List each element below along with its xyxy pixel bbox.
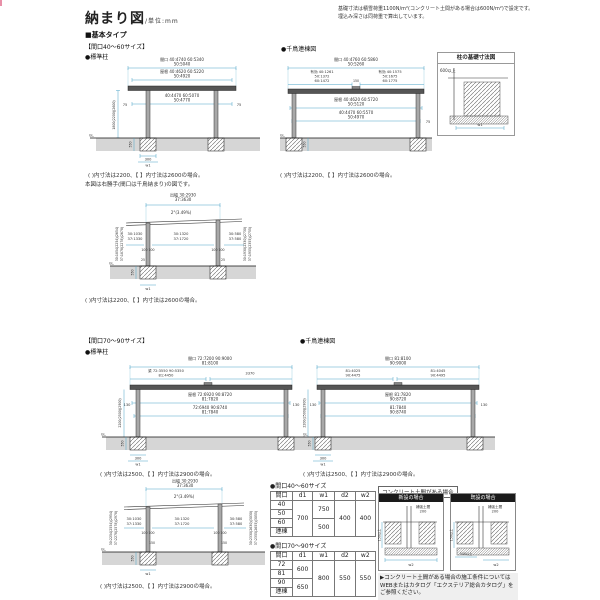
foundation-detail-box: 柱の基礎寸法図 600以上 w1: [437, 52, 515, 136]
dim-label: 50:1372: [315, 75, 330, 79]
gl-label: GL.: [89, 134, 94, 138]
dim-label: 25: [141, 258, 145, 262]
dim-label: 90:4495: [431, 374, 446, 378]
overhang-label: 130: [310, 403, 318, 407]
gl-label: GL.: [101, 548, 106, 552]
post: [471, 390, 475, 438]
dim-label: 81:8100: [202, 361, 219, 366]
dim-label: 25: [221, 258, 225, 262]
drawing-note: ( )内寸法は2500、【 】内寸法は2900の場合。: [100, 582, 216, 590]
dim-label: 梁 72:3550 90:5350: [148, 368, 184, 373]
table-70-90: 間口 d1 w1 d2 w2 72 600 800 550 550 81 906…: [270, 551, 376, 597]
section-size-40-60: 【間口40～60サイズ】: [85, 42, 148, 51]
dim-label: 有効 40:1261: [310, 69, 333, 74]
roof-beam: [128, 86, 236, 91]
base-width-label: 300: [135, 457, 143, 461]
header-note-line2: 埋込み深さは同荷重で算出しています。: [338, 14, 594, 22]
col-header: w1: [313, 552, 335, 561]
footing: [286, 138, 302, 151]
ground: [303, 437, 495, 450]
cell-d1: 700: [292, 501, 312, 537]
concrete-panel: コンクリート土間がある場合 新設の場合 補強土間 200 150以上 w2 既設…: [378, 479, 518, 498]
roof-beam: [288, 89, 424, 94]
drawing-renketsu-40-60: 間口 40:4760 60:5860 50:5260 有効 40:1261 50…: [280, 57, 432, 169]
depth-label: 550: [131, 269, 135, 275]
ground: [90, 138, 260, 151]
slab-dim: 200: [492, 510, 500, 514]
concrete-hatch: [419, 522, 435, 544]
dim-label: 90:9000: [390, 361, 407, 366]
drawing-note: ( )内寸法は2200、【 】内寸法は2600の場合。: [85, 296, 201, 304]
col-header: w2: [355, 492, 375, 501]
dim-label: 50:5120: [348, 102, 365, 107]
height-label: 2200(2500)(2900): [118, 398, 122, 427]
footing: [467, 437, 483, 450]
slope-label: 2°(3.49%): [171, 210, 192, 215]
ground: [102, 552, 265, 565]
concrete-box-new: 新設の場合 補強土間 200 150以上 w2: [378, 493, 444, 571]
height-label: 30:1854(2254)(2654): [115, 227, 119, 261]
table-row: 40 700 750 400 400: [271, 501, 376, 510]
header-note: 基礎寸法は積雪荷重1100N/m²(コンクリート土間がある場合は600N/m²)…: [338, 6, 594, 21]
dim-label: 37:3630: [177, 483, 194, 488]
col-header: w2: [355, 552, 375, 561]
cell-d2: 400: [335, 501, 355, 537]
dim-label: 150: [149, 541, 155, 545]
w2-label: w2: [408, 563, 413, 567]
dim-label: 81:4025: [346, 369, 361, 373]
w1-label: w1: [145, 572, 150, 576]
depth-label: 550: [129, 141, 133, 147]
cell-w1: 750: [313, 501, 335, 519]
concrete-box-existing: 既設の場合 補強土間 200 150以上 500以上 w2: [450, 493, 516, 571]
dim-label: 90:8740: [390, 410, 407, 415]
dim-label: 37:1330: [128, 237, 144, 241]
w1-label: w1: [135, 463, 140, 467]
drawing-side-view-40-60: 出幅 30:2930 37:3630 2°(3.49%) 30:1030 37:…: [108, 192, 256, 292]
dim-label: 37:580: [230, 522, 243, 526]
col-header: d1: [292, 492, 312, 501]
section-basic-type: ■基本タイプ: [85, 30, 127, 40]
cell-size: 90: [271, 579, 293, 588]
catalog-page: { "header": { "title": "納まり図", "unit": "…: [0, 0, 600, 600]
post: [136, 390, 140, 438]
post: [216, 220, 220, 266]
concrete-hatch: [457, 522, 473, 544]
dim-label: 30:580: [229, 232, 242, 236]
side-view-note: 本図は右勝手(間口は千鳥納まり)の図です。: [85, 180, 193, 188]
foundation-detail-drawing: 600以上 w1: [438, 64, 512, 132]
drawing-note: ( )内寸法は2200、【 】内寸法は2600の場合。: [88, 171, 204, 179]
cell-w2: 400: [355, 501, 375, 537]
slab-label: 補強土間: [488, 504, 503, 509]
overhang-label: 130: [293, 403, 301, 407]
dim-label: 100 100: [211, 248, 224, 252]
slab-label: 補強土間: [416, 504, 431, 509]
w1-label: w1: [145, 287, 150, 291]
height-label: 30:2254(2554)(2954): [109, 511, 113, 545]
height-label: 37:1955(2355)(2755): [248, 227, 252, 261]
depth-label: 550: [303, 141, 307, 147]
dim-label: 100 100: [141, 531, 154, 535]
dim-label: 30:580: [230, 517, 243, 521]
post: [146, 223, 150, 266]
col-header: w1: [313, 492, 335, 501]
table-a-title: ●間口40～60サイズ: [270, 481, 376, 490]
overhang-label: 75: [123, 103, 128, 107]
footing: [278, 437, 294, 450]
drawing-front-elevation-40-60: 間口 40:4740 60:5340 50:5040 屋根 40:4620 60…: [88, 57, 260, 169]
w1-label: w1: [145, 164, 150, 168]
header-note-line1: 基礎寸法は積雪荷重1100N/m²(コンクリート土間がある場合は600N/m²)…: [338, 6, 594, 14]
cell-d2: 550: [335, 561, 355, 597]
dim-label: 100 100: [141, 248, 154, 252]
gl-label: GL.: [109, 262, 114, 266]
dim-label: 30:1030: [128, 232, 144, 236]
dim-label: 30:1320: [174, 232, 190, 236]
footing: [315, 437, 331, 450]
drawing-note: ( )内寸法は2500、【 】内寸法は2900の場合。: [303, 470, 419, 478]
post: [146, 507, 150, 552]
concrete-hatch: [491, 522, 507, 544]
dim-label: 37:580: [229, 237, 242, 241]
w1-label: w1: [477, 123, 482, 127]
concrete-hatch: [385, 522, 401, 544]
col-header: d1: [292, 552, 312, 561]
cell-size: 連棟: [271, 588, 293, 597]
slab-dim: 200: [420, 510, 428, 514]
height-label: 2200(2500)(2900): [303, 398, 307, 427]
overhang-label: 75: [237, 103, 242, 107]
col-header: 間口: [271, 492, 293, 501]
dim-label: 81:4450: [159, 374, 175, 378]
cell-size: 40: [271, 501, 293, 510]
dim-label: 37:1720: [174, 237, 190, 241]
roof-beam: [317, 385, 479, 390]
drawing-front-elevation-70-90: 間口 72:7200 90:9000 81:8100 梁 72:3550 90:…: [100, 356, 305, 468]
dim-label: 30:1030: [127, 517, 143, 521]
slope-label: 2°(3.49%): [174, 494, 195, 499]
side-dim: 150以上: [449, 528, 454, 541]
roof-connector: [204, 383, 212, 386]
dim-label: 81:4045: [431, 369, 446, 373]
cell-d1: 600: [292, 561, 312, 579]
cell-d1: 650: [292, 579, 312, 597]
overhang-label: 130: [124, 403, 132, 407]
roof-connector: [352, 87, 360, 90]
cell-size: 60: [271, 519, 293, 528]
gl-label: GL.: [303, 433, 308, 437]
base-dim: 500以上: [460, 551, 473, 556]
crop-mark: [0, 0, 2, 6]
cell-size: 50: [271, 510, 293, 519]
label-standard-post: ●標準柱: [85, 347, 108, 356]
dim-label: 150: [221, 541, 227, 545]
dim-label: 81:7820: [202, 397, 219, 402]
dim-label: 50:4970: [348, 115, 365, 120]
drawing-note: ( )内寸法は2500、【 】内寸法は2900の場合。: [100, 470, 216, 478]
dim-label: 50:5040: [174, 62, 191, 67]
depth-label: 550: [308, 440, 312, 446]
dim-label: 60:1472: [315, 79, 330, 83]
page-title: 納まり図/単位:mm: [85, 8, 179, 28]
footing: [140, 138, 156, 151]
dim-label: 有効 40:1575: [378, 69, 401, 74]
height-label: 30:1930(2330)(2730): [243, 227, 247, 261]
col-header: d2: [335, 492, 355, 501]
col-header: d2: [335, 552, 355, 561]
dim-label: 50:5260: [348, 62, 365, 67]
post: [321, 390, 325, 438]
drawing-side-view-70-90: 出幅 30:2930 37:3630 2°(3.49%) 30:1030 37:…: [100, 478, 265, 578]
table-row: 72 600 800 550 550: [271, 561, 376, 570]
cell-w1: 500: [313, 519, 335, 537]
post: [214, 91, 218, 139]
footing: [208, 138, 224, 151]
drawing-note: ( )内寸法は2200、【 】内寸法は2600の場合。: [280, 171, 396, 179]
section-size-70-90: 【間口70～90サイズ】: [85, 336, 148, 345]
cell-w2: 550: [355, 561, 375, 597]
height-label: 37:2278(2578)(2978): [114, 511, 118, 545]
dim-label: 50:4770: [174, 98, 191, 103]
table-40-60: 間口 d1 w1 d2 w2 40 700 750 400 400 50 605…: [270, 491, 376, 537]
footing: [210, 266, 226, 279]
overhang-label: 75: [426, 120, 431, 124]
dim-label: 150: [353, 79, 359, 83]
post: [292, 94, 296, 139]
table-b-title: ●間口70～90サイズ: [270, 541, 376, 550]
height-label: 37:1878(2278)(2678): [120, 227, 124, 261]
min-depth-label: 600以上: [440, 67, 456, 73]
gl-label: GL.: [101, 433, 106, 437]
side-dim: 150以上: [377, 528, 382, 541]
depth-label: 550: [131, 555, 135, 561]
concrete-box-new-title: 新設の場合: [379, 494, 443, 502]
footing: [212, 552, 228, 565]
post: [146, 91, 150, 139]
dim-label: 50:4920: [174, 74, 191, 79]
gravel-hatch: [385, 548, 437, 555]
base-width-label: 300: [320, 457, 328, 461]
ground: [102, 437, 305, 450]
dim-label: 37:3630: [175, 197, 192, 202]
footing: [140, 552, 156, 565]
dim-label: 30:1320: [175, 517, 191, 521]
dimension-tables: ●間口40～60サイズ 間口 d1 w1 d2 w2 40 700 750 40…: [270, 481, 376, 597]
concrete-existing-drawing: 補強土間 200 150以上 500以上 w2: [451, 502, 513, 568]
roof-beam: [130, 385, 292, 390]
dim-label: 3370: [245, 372, 255, 376]
cell-size: 81: [271, 570, 293, 579]
dim-label: 100 100: [213, 531, 226, 535]
dim-label: 81:7840: [202, 410, 219, 415]
roof-connector: [394, 383, 402, 386]
col-header: 間口: [271, 552, 293, 561]
dim-label: 37:1720: [175, 522, 191, 526]
dim-label: 90:4475: [346, 374, 361, 378]
cell-w1: 800: [313, 561, 335, 597]
dim-label: 90:8720: [390, 397, 407, 402]
base-width-label: 300: [145, 158, 153, 162]
depth-label: 550: [121, 440, 125, 446]
concrete-new-drawing: 補強土間 200 150以上 w2: [379, 502, 441, 568]
dim-label: 37:1330: [127, 522, 143, 526]
w1-label: w1: [320, 463, 325, 467]
footing: [140, 266, 156, 279]
footing: [130, 437, 146, 450]
dim-label: 50:1675: [383, 75, 398, 79]
concrete-box-existing-title: 既設の場合: [451, 494, 515, 502]
height-label: 37:2355(2655)(3055): [254, 511, 258, 545]
cell-size: 連棟: [271, 528, 293, 537]
label-renketsu: ●千鳥連棟図: [281, 44, 316, 53]
page-title-text: 納まり図: [85, 11, 145, 27]
height-label: 30:2330(2630)(3030): [249, 511, 253, 545]
gl-label: GL.: [280, 134, 285, 138]
overhang-label: 130: [481, 403, 489, 407]
w2-label: w2: [493, 563, 498, 567]
foundation-detail-title: 柱の基礎寸法図: [438, 53, 514, 64]
cell-size: 72: [271, 561, 293, 570]
dim-label: 60:1775: [383, 79, 398, 83]
post: [416, 94, 420, 139]
footing: [410, 138, 426, 151]
post: [284, 390, 288, 438]
concrete-hatch: [464, 82, 500, 116]
unit-label: /単位:mm: [145, 18, 179, 25]
height-label: 1800(2200)(2600): [112, 100, 116, 129]
drawing-renketsu-70-90: 間口 81:8100 90:9000 81:4025 90:4475 81:40…: [303, 356, 495, 468]
concrete-note: ▶コンクリート土間がある場合の施工条件についてはWEBまたはカタログ「エクステリ…: [378, 573, 518, 600]
label-renketsu: ●千鳥連棟図: [300, 336, 335, 345]
